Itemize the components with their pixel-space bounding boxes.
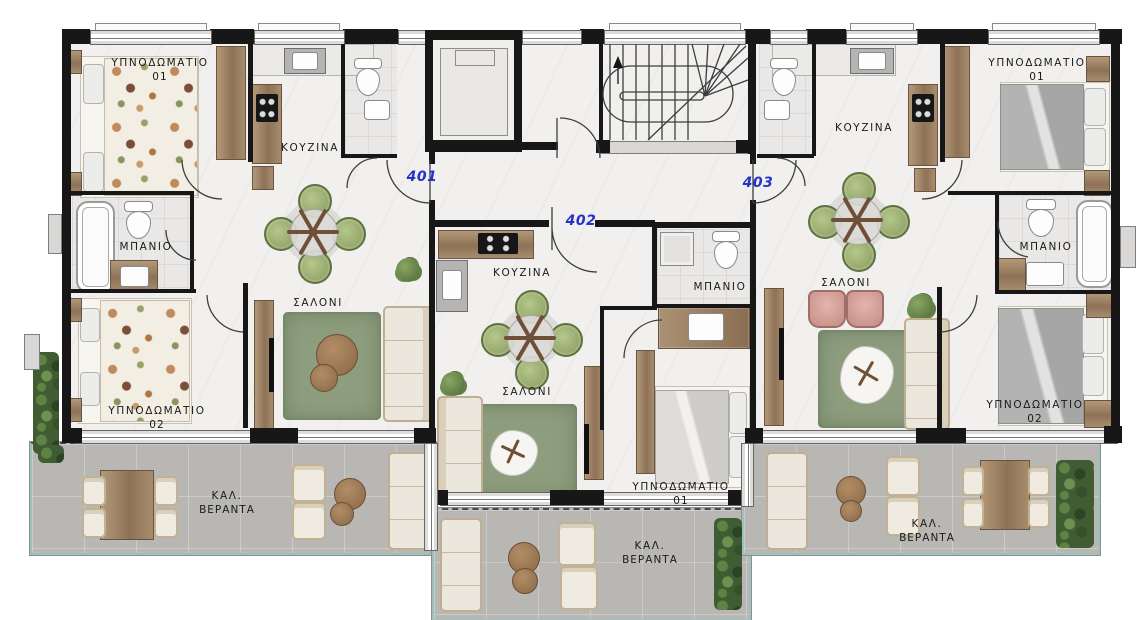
room-label-text: ΥΠΝΟΔΩΜΑΤΙΟ: [986, 399, 1083, 411]
room-label-bedroom2-403: ΥΠΝΟΔΩΜΑΤΙΟ 02: [986, 398, 1083, 426]
room-label-veranda-402: ΚΑΛ. ΒΕΡΑΝΤΑ: [622, 539, 678, 567]
door-stairwell: [557, 118, 600, 158]
floor-plan: ΥΠΝΟΔΩΜΑΤΙΟ 01 ΚΟΥΖΙΝΑ ΜΠΑΝΙΟ ΥΠΝΟΔΩΜΑΤΙ…: [0, 0, 1140, 620]
door-bedroom2-403: [941, 295, 977, 332]
room-label-kitchen-401: ΚΟΥΖΙΝΑ: [281, 141, 339, 155]
room-label-text: ΚΟΥΖΙΝΑ: [493, 267, 551, 279]
apartment-number-401: 401: [407, 169, 438, 185]
room-label-living-403: ΣΑΛΟΝΙ: [821, 276, 871, 290]
room-index: 01: [111, 70, 208, 84]
staircase: [603, 44, 748, 140]
door-bathroom-402: [624, 320, 662, 358]
room-label-text: ΜΠΑΝΙΟ: [1020, 241, 1073, 253]
room-label-living-401: ΣΑΛΟΝΙ: [293, 296, 343, 310]
room-label-bedroom1-401: ΥΠΝΟΔΩΜΑΤΙΟ 01: [111, 56, 208, 84]
room-index: 02: [108, 418, 205, 432]
room-label-text: ΚΑΛ.: [912, 518, 943, 530]
room-label-text: ΥΠΝΟΔΩΜΑΤΙΟ: [632, 481, 729, 493]
room-label-text: ΚΑΛ.: [212, 490, 243, 502]
room-label-text: ΚΟΥΖΙΝΑ: [835, 122, 893, 134]
room-label-text: ΜΠΑΝΙΟ: [694, 281, 747, 293]
room-label-text: ΣΑΛΟΝΙ: [293, 297, 343, 309]
room-label-text: ΣΑΛΟΝΙ: [502, 386, 552, 398]
door-bedroom1-403: [922, 160, 962, 199]
room-label-kitchen-402: ΚΟΥΖΙΝΑ: [493, 266, 551, 280]
door-bedroom2-401: [207, 295, 243, 332]
room-label-living-402: ΣΑΛΟΝΙ: [502, 385, 552, 399]
room-label-text: ΥΠΝΟΔΩΜΑΤΙΟ: [108, 405, 205, 417]
room-label-bedroom1-403: ΥΠΝΟΔΩΜΑΤΙΟ 01: [988, 56, 1085, 84]
room-label-bathroom-402: ΜΠΑΝΙΟ: [694, 280, 747, 294]
room-label-text: ΒΕΡΑΝΤΑ: [622, 553, 678, 567]
door-wc-403: [777, 158, 805, 186]
room-label-veranda-401: ΚΑΛ. ΒΕΡΑΝΤΑ: [199, 489, 255, 517]
room-label-text: ΜΠΑΝΙΟ: [120, 241, 173, 253]
room-index: 01: [988, 70, 1085, 84]
room-index: 01: [632, 494, 729, 508]
room-label-text: ΒΕΡΑΝΤΑ: [899, 531, 955, 545]
doors-and-stairs-layer: [0, 0, 1140, 620]
door-wc-401: [347, 158, 377, 188]
room-label-text: ΥΠΝΟΔΩΜΑΤΙΟ: [988, 57, 1085, 69]
room-label-text: ΚΑΛ.: [635, 540, 666, 552]
room-label-bathroom-401: ΜΠΑΝΙΟ: [120, 240, 173, 254]
room-label-text: ΚΟΥΖΙΝΑ: [281, 142, 339, 154]
room-label-bathroom-403: ΜΠΑΝΙΟ: [1020, 240, 1073, 254]
room-label-text: ΥΠΝΟΔΩΜΑΤΙΟ: [111, 57, 208, 69]
door-bedroom1-401: [182, 160, 222, 199]
room-label-veranda-403: ΚΑΛ. ΒΕΡΑΝΤΑ: [899, 517, 955, 545]
apartment-number-402: 402: [566, 213, 597, 229]
room-label-text: ΒΕΡΑΝΤΑ: [199, 503, 255, 517]
room-label-kitchen-403: ΚΟΥΖΙΝΑ: [835, 121, 893, 135]
apartment-number-403: 403: [743, 175, 774, 191]
room-index: 02: [986, 412, 1083, 426]
room-label-bedroom2-401: ΥΠΝΟΔΩΜΑΤΙΟ 02: [108, 404, 205, 432]
room-label-text: ΣΑΛΟΝΙ: [821, 277, 871, 289]
room-label-bedroom1-402: ΥΠΝΟΔΩΜΑΤΙΟ 01: [632, 480, 729, 508]
